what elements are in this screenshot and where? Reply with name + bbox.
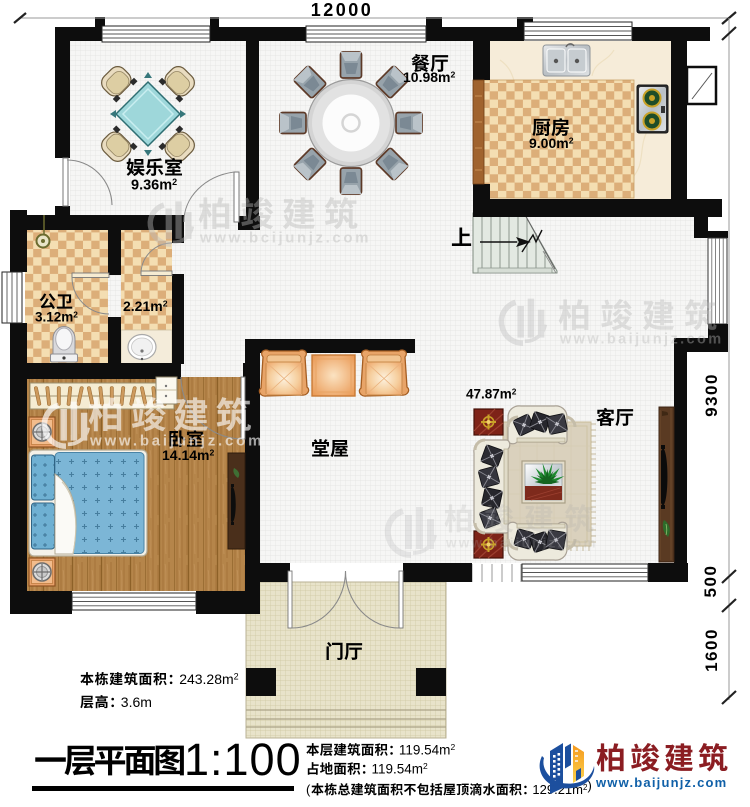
svg-text:243.28m2: 243.28m2 (179, 671, 239, 687)
svg-text:10.98m2: 10.98m2 (403, 69, 455, 85)
svg-text:1600: 1600 (702, 628, 721, 672)
svg-text:1:100: 1:100 (184, 734, 302, 785)
svg-text:www.baijunjz.com: www.baijunjz.com (595, 775, 727, 790)
svg-text:9.36m2: 9.36m2 (131, 177, 177, 193)
svg-text:3.6m: 3.6m (121, 694, 152, 710)
svg-text:www.bcijunjz.com: www.bcijunjz.com (199, 230, 371, 247)
svg-text:119.54m2: 119.54m2 (399, 742, 456, 758)
svg-text:9.00m2: 9.00m2 (529, 135, 574, 151)
svg-text:12000: 12000 (311, 0, 374, 20)
svg-text:119.54m2: 119.54m2 (372, 761, 429, 777)
svg-text:3.12m2: 3.12m2 (35, 310, 78, 325)
svg-text:www.baijunjz.com: www.baijunjz.com (559, 331, 724, 347)
svg-text:2.21m2: 2.21m2 (123, 298, 168, 314)
svg-text:9300: 9300 (702, 373, 721, 417)
svg-text:500: 500 (701, 565, 720, 598)
svg-text:www.baijunjz.com: www.baijunjz.com (89, 433, 264, 450)
svg-text:(: ( (306, 782, 311, 797)
svg-text:47.87m2: 47.87m2 (466, 387, 517, 402)
svg-text:www.baijunjz.com: www.baijunjz.com (445, 536, 598, 551)
